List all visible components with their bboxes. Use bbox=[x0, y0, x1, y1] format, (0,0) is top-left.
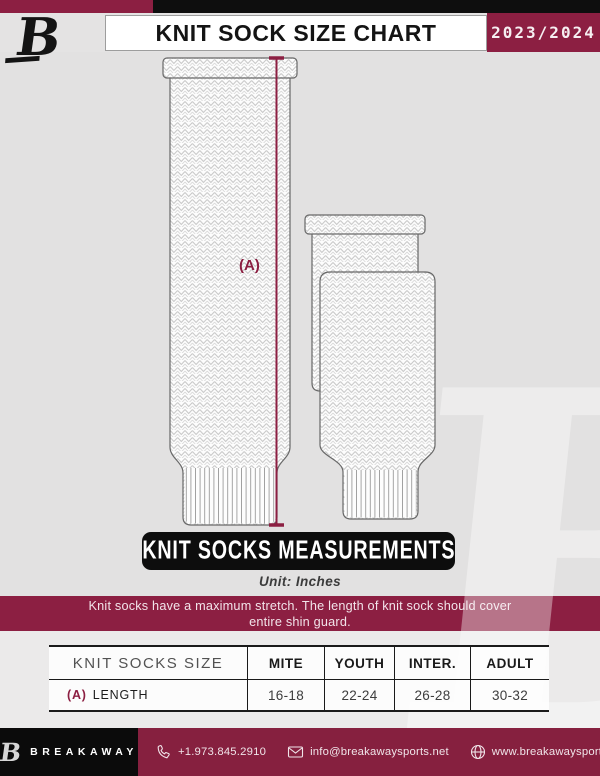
table-header-size: KNIT SOCKS SIZE bbox=[49, 647, 247, 680]
table-header-inter: INTER. bbox=[394, 647, 470, 680]
top-strip-black bbox=[153, 0, 600, 13]
value-youth: 22-24 bbox=[324, 680, 394, 710]
globe-icon bbox=[470, 744, 486, 760]
footer: B BREAKAWAY +1.973.845.2910 info@breakaw… bbox=[0, 728, 600, 776]
footer-contact-block: +1.973.845.2910 info@breakawaysports.net… bbox=[138, 728, 600, 776]
notice-line-1: Knit socks have a maximum stretch. The l… bbox=[89, 598, 512, 614]
footer-phone[interactable]: +1.973.845.2910 bbox=[156, 744, 266, 760]
sock-mite bbox=[320, 272, 435, 519]
sock-diagram: (A) bbox=[0, 52, 600, 596]
row-label-length: LENGTH bbox=[93, 688, 149, 702]
unit-note: Unit: Inches bbox=[0, 574, 600, 589]
phone-icon bbox=[156, 744, 172, 760]
footer-logo-icon: B bbox=[0, 738, 23, 767]
footer-email[interactable]: info@breakawaysports.net bbox=[287, 744, 449, 760]
footer-phone-number: +1.973.845.2910 bbox=[178, 746, 266, 758]
footer-website-url: www.breakawaysports.net bbox=[492, 746, 600, 758]
value-adult: 30-32 bbox=[470, 680, 549, 710]
notice-line-2: entire shin guard. bbox=[249, 614, 351, 630]
measurements-banner: KNIT SOCKS MEASUREMENTS bbox=[142, 532, 455, 570]
table-header-youth: YOUTH bbox=[324, 647, 394, 680]
value-mite: 16-18 bbox=[247, 680, 324, 710]
size-table: KNIT SOCKS SIZE MITE YOUTH INTER. ADULT … bbox=[49, 645, 549, 712]
email-icon bbox=[287, 744, 304, 760]
sock-size-chart-page: B KNIT SOCK SIZE CHART 2023/2024 Knit so… bbox=[0, 0, 600, 776]
footer-brand-block: B BREAKAWAY bbox=[0, 728, 138, 776]
brand-logo-icon: B bbox=[12, 12, 80, 70]
top-accent-strip bbox=[0, 0, 600, 13]
page-title-bar: KNIT SOCK SIZE CHART bbox=[105, 15, 487, 51]
footer-email-address: info@breakawaysports.net bbox=[310, 746, 449, 758]
table-row-label: (A) LENGTH bbox=[49, 680, 247, 710]
measurements-banner-label: KNIT SOCKS MEASUREMENTS bbox=[142, 536, 455, 566]
notice-banner: Knit socks have a maximum stretch. The l… bbox=[0, 596, 600, 631]
page-title: KNIT SOCK SIZE CHART bbox=[156, 20, 437, 47]
row-key-a: (A) bbox=[67, 688, 87, 702]
measurement-label-a: (A) bbox=[239, 257, 260, 274]
value-inter: 26-28 bbox=[394, 680, 470, 710]
table-header-mite: MITE bbox=[247, 647, 324, 680]
footer-brand-name: BREAKAWAY bbox=[30, 746, 138, 758]
table-header-adult: ADULT bbox=[470, 647, 549, 680]
season-label: 2023/2024 bbox=[491, 23, 596, 42]
season-badge: 2023/2024 bbox=[487, 13, 600, 52]
footer-website[interactable]: www.breakawaysports.net bbox=[470, 744, 600, 760]
